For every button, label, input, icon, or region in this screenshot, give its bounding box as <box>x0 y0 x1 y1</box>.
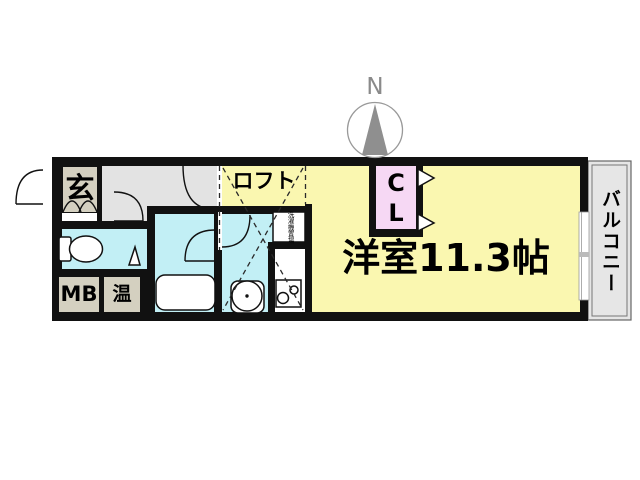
closet-label-c: C <box>376 168 416 198</box>
wall-toilet-top <box>52 221 155 229</box>
meter-box-label: MB <box>59 277 99 312</box>
wall-outer-top <box>52 157 588 166</box>
bathtub <box>156 275 215 310</box>
window-divider <box>579 252 589 257</box>
water-heater-label: 温 <box>104 277 140 312</box>
main-room-label: 洋室11.3帖 <box>315 236 577 282</box>
closet-label-l: L <box>376 198 416 228</box>
toilet-fixture <box>59 236 103 262</box>
wall-kitchen-right <box>305 204 312 316</box>
floorplan-image: N 玄 ロフト C L 洋室11.3帖 バルコニー MB 温 洗濯機置場 <box>0 0 640 480</box>
door-arc-entrance <box>16 170 43 204</box>
wall-kitchen-left <box>268 249 275 316</box>
washer-space-label: 洗濯機置場 <box>276 214 303 241</box>
balcony-label: バルコニー <box>593 167 626 315</box>
hallway-floor-step <box>102 214 147 221</box>
loft-label: ロフト <box>222 169 306 194</box>
entrance-step <box>62 213 98 221</box>
north-indicator <box>348 103 403 158</box>
stove <box>276 280 301 307</box>
entrance-label: 玄 <box>62 168 98 210</box>
north-label: N <box>355 76 395 100</box>
balcony-window <box>579 212 589 300</box>
